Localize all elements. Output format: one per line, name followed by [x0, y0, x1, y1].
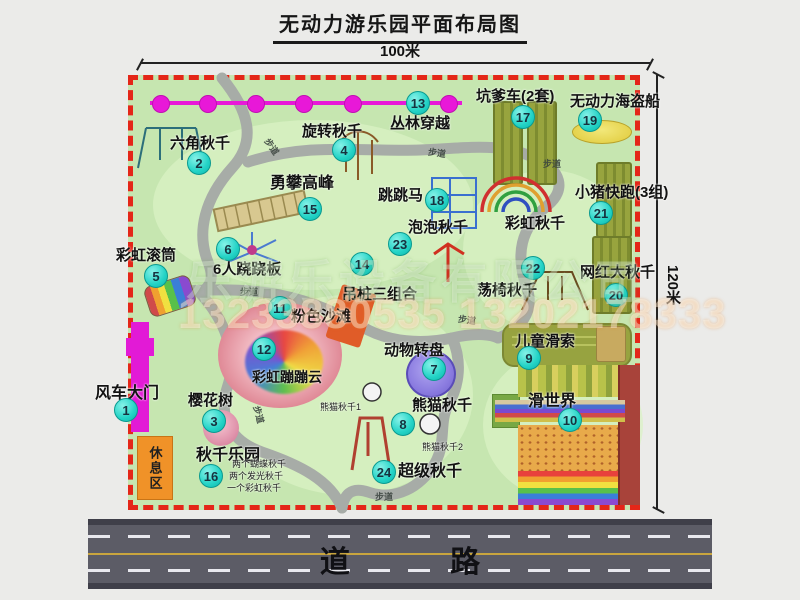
- path-label: 步道: [457, 312, 477, 327]
- attraction-badge: 14: [350, 252, 374, 276]
- attraction-label: 两个蝴蝶秋千: [232, 460, 286, 469]
- path-label: 步道: [375, 490, 393, 503]
- attraction-label: 荡椅秋千: [477, 283, 537, 299]
- attraction-label: 跳跳马: [378, 188, 423, 204]
- attraction-label: 熊猫秋千2: [422, 443, 463, 452]
- attraction-badge: 1: [114, 398, 138, 422]
- attraction-label: 6人跷跷板: [213, 262, 281, 278]
- road: 道 路: [88, 519, 712, 589]
- attraction-badge: 24: [372, 460, 396, 484]
- attraction-label: 勇攀高峰: [270, 176, 334, 193]
- attraction-badge: 8: [391, 412, 415, 436]
- attraction-label: 丛林穿越: [390, 116, 450, 132]
- page: 无动力游乐园平面布局图 100米 120米 休息区: [0, 0, 800, 600]
- attraction-label: 彩虹蹦蹦云: [252, 370, 322, 385]
- attraction-badge: 11: [268, 296, 292, 320]
- attraction-layer: 风车大门1六角秋千2樱花树3旋转秋千4彩虹滚筒56人跷跷板6动物转盘7熊猫秋千8…: [0, 0, 800, 600]
- attraction-badge: 18: [425, 188, 449, 212]
- attraction-badge: 5: [144, 264, 168, 288]
- road-label: 道 路: [88, 537, 712, 581]
- attraction-label: 一个彩虹秋千: [227, 484, 281, 493]
- attraction-badge: 2: [187, 151, 211, 175]
- attraction-label: 粉色沙滩: [291, 309, 351, 325]
- attraction-badge: 7: [422, 357, 446, 381]
- attraction-label: 旋转秋千: [302, 124, 362, 140]
- attraction-label: 两个发光秋千: [229, 472, 283, 481]
- attraction-badge: 16: [199, 464, 223, 488]
- path-label: 步道: [250, 404, 267, 425]
- attraction-badge: 9: [517, 346, 541, 370]
- attraction-label: 网红大秋千: [580, 265, 655, 281]
- attraction-badge: 3: [202, 409, 226, 433]
- attraction-badge: 4: [332, 138, 356, 162]
- attraction-badge: 12: [252, 337, 276, 361]
- path-label: 步道: [262, 135, 283, 157]
- attraction-badge: 6: [216, 237, 240, 261]
- attraction-label: 泡泡秋千: [408, 220, 468, 236]
- path-label: 步道: [427, 145, 447, 160]
- attraction-label: 彩虹滚筒: [116, 248, 176, 264]
- attraction-badge: 22: [521, 256, 545, 280]
- attraction-label: 超级秋千: [398, 464, 462, 481]
- attraction-badge: 21: [589, 201, 613, 225]
- attraction-badge: 19: [578, 108, 602, 132]
- attraction-label: 小猪快跑(3组): [575, 185, 668, 201]
- path-label: 步道: [543, 157, 561, 170]
- attraction-label: 无动力海盗船: [570, 94, 660, 110]
- attraction-label: 熊猫秋千: [412, 398, 472, 414]
- attraction-label: 吊桩三组合: [342, 287, 417, 303]
- path-label: 步道: [240, 285, 258, 298]
- attraction-label: 六角秋千: [170, 136, 230, 152]
- attraction-label: 熊猫秋千1: [320, 403, 361, 412]
- attraction-label: 樱花树: [188, 393, 233, 409]
- attraction-badge: 15: [298, 197, 322, 221]
- attraction-badge: 17: [511, 105, 535, 129]
- attraction-badge: 13: [406, 91, 430, 115]
- attraction-badge: 10: [558, 408, 582, 432]
- attraction-label: 坑爹车(2套): [476, 89, 554, 105]
- attraction-badge: 20: [604, 283, 628, 307]
- attraction-badge: 23: [388, 232, 412, 256]
- attraction-label: 彩虹秋千: [505, 216, 565, 232]
